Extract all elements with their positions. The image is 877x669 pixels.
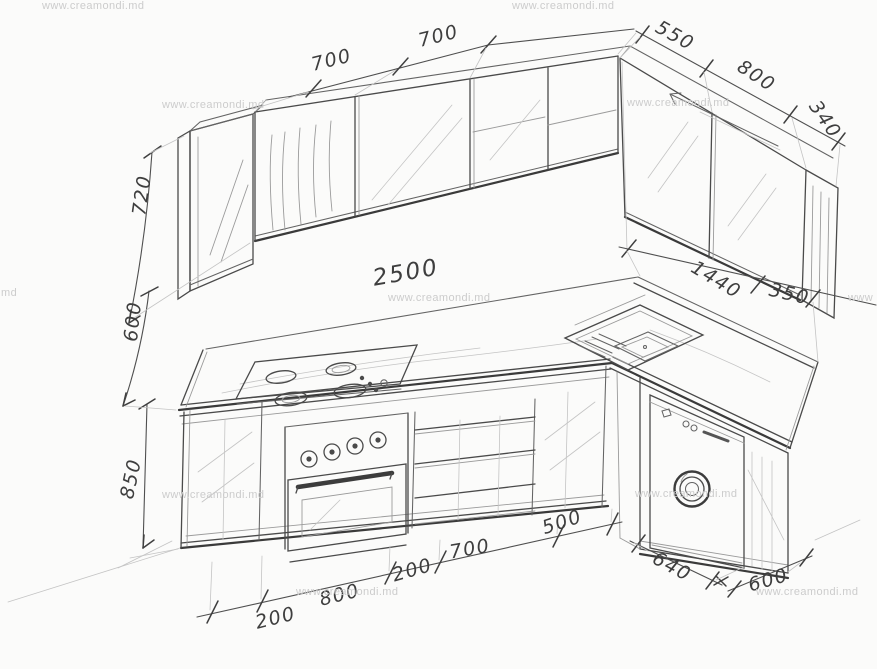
watermark: www.creamondi.md [755, 586, 858, 598]
dim-right-top-1: 550 [652, 16, 698, 55]
watermark: www.creamondi.md [387, 292, 490, 304]
drain-grooves [578, 334, 626, 357]
tall-cabinet [178, 105, 263, 299]
dim-bottom-3: 200 [390, 554, 435, 586]
watermark-fragment-left: md [1, 287, 17, 299]
oven-knobs [301, 432, 386, 467]
dim-right-wall-2: 350 [767, 279, 812, 310]
watermark: www.creamondi.md [634, 488, 737, 500]
dim-height-upper: 720 [128, 173, 155, 216]
kitchen-sketch: 700 700 550 800 340 720 600 850 2500 144… [0, 0, 877, 669]
dim-right-top-2: 800 [733, 56, 779, 97]
dim-height-mid: 600 [120, 300, 146, 343]
watermark: www.creamondi.md [161, 99, 264, 111]
dim-right-top-3: 340 [804, 97, 845, 143]
watermark: www.creamondi.md [41, 0, 144, 12]
dimension-lines [123, 26, 876, 623]
tick-marks [123, 26, 845, 623]
dim-wall-top-2: 700 [416, 21, 461, 52]
washing-machine [650, 395, 744, 568]
oven-handle [298, 473, 392, 487]
side-panel-hatch [748, 452, 784, 571]
dim-bottom-4: 700 [448, 535, 492, 564]
drawer-cabinet [412, 399, 535, 528]
wall-cabinets-left [255, 46, 630, 241]
oven-door [288, 464, 406, 551]
dim-bottom-5: 500 [539, 506, 585, 540]
watermark: www.creamondi.md [511, 0, 614, 12]
sink-drain [644, 346, 647, 349]
watermark: www.creamondi.md [161, 489, 264, 501]
dim-wall-top-1: 700 [309, 45, 354, 76]
watermark: www.creamondi.md [295, 586, 398, 598]
dim-counter-length: 2500 [371, 255, 441, 292]
stove [236, 345, 417, 562]
dim-right-bottom-1: 640 [649, 547, 695, 586]
dim-height-base: 850 [116, 457, 146, 501]
watermark: www.creamondi.md [626, 97, 729, 109]
dim-right-wall-1: 1440 [687, 256, 745, 303]
watermark-fragment-right: www [847, 292, 873, 304]
